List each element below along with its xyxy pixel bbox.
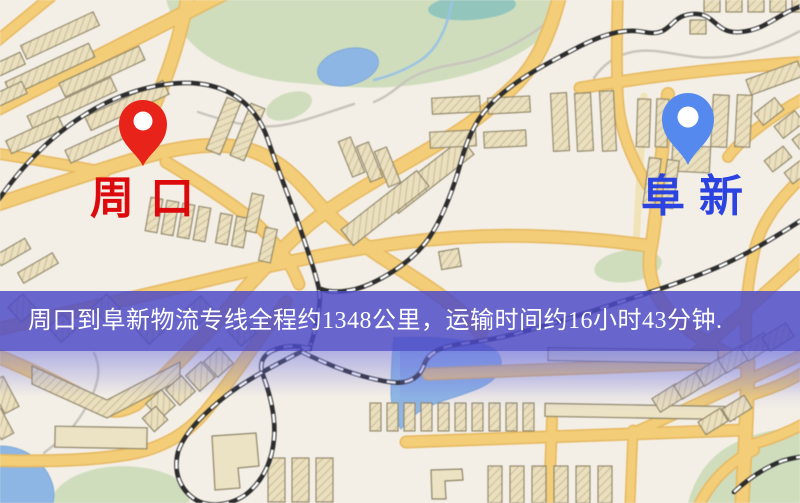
destination-pin[interactable] [656, 89, 720, 167]
map-canvas [0, 0, 800, 503]
origin-pin-hole [134, 112, 153, 131]
destination-city-label: 阜新 [641, 175, 757, 219]
origin-city-label: 周口 [90, 177, 210, 221]
destination-pin-hole [678, 107, 699, 128]
destination-pin-shape [662, 93, 714, 165]
origin-pin-shape [119, 100, 167, 166]
map-screenshot: 周口 阜新 周口到阜新物流专线全程约1348公里，运输时间约16小时43分钟. [0, 0, 800, 503]
route-info-text: 周口到阜新物流专线全程约1348公里，运输时间约16小时43分钟. [28, 291, 723, 351]
origin-pin[interactable] [113, 94, 173, 168]
route-info-banner: 周口到阜新物流专线全程约1348公里，运输时间约16小时43分钟. [0, 291, 800, 351]
